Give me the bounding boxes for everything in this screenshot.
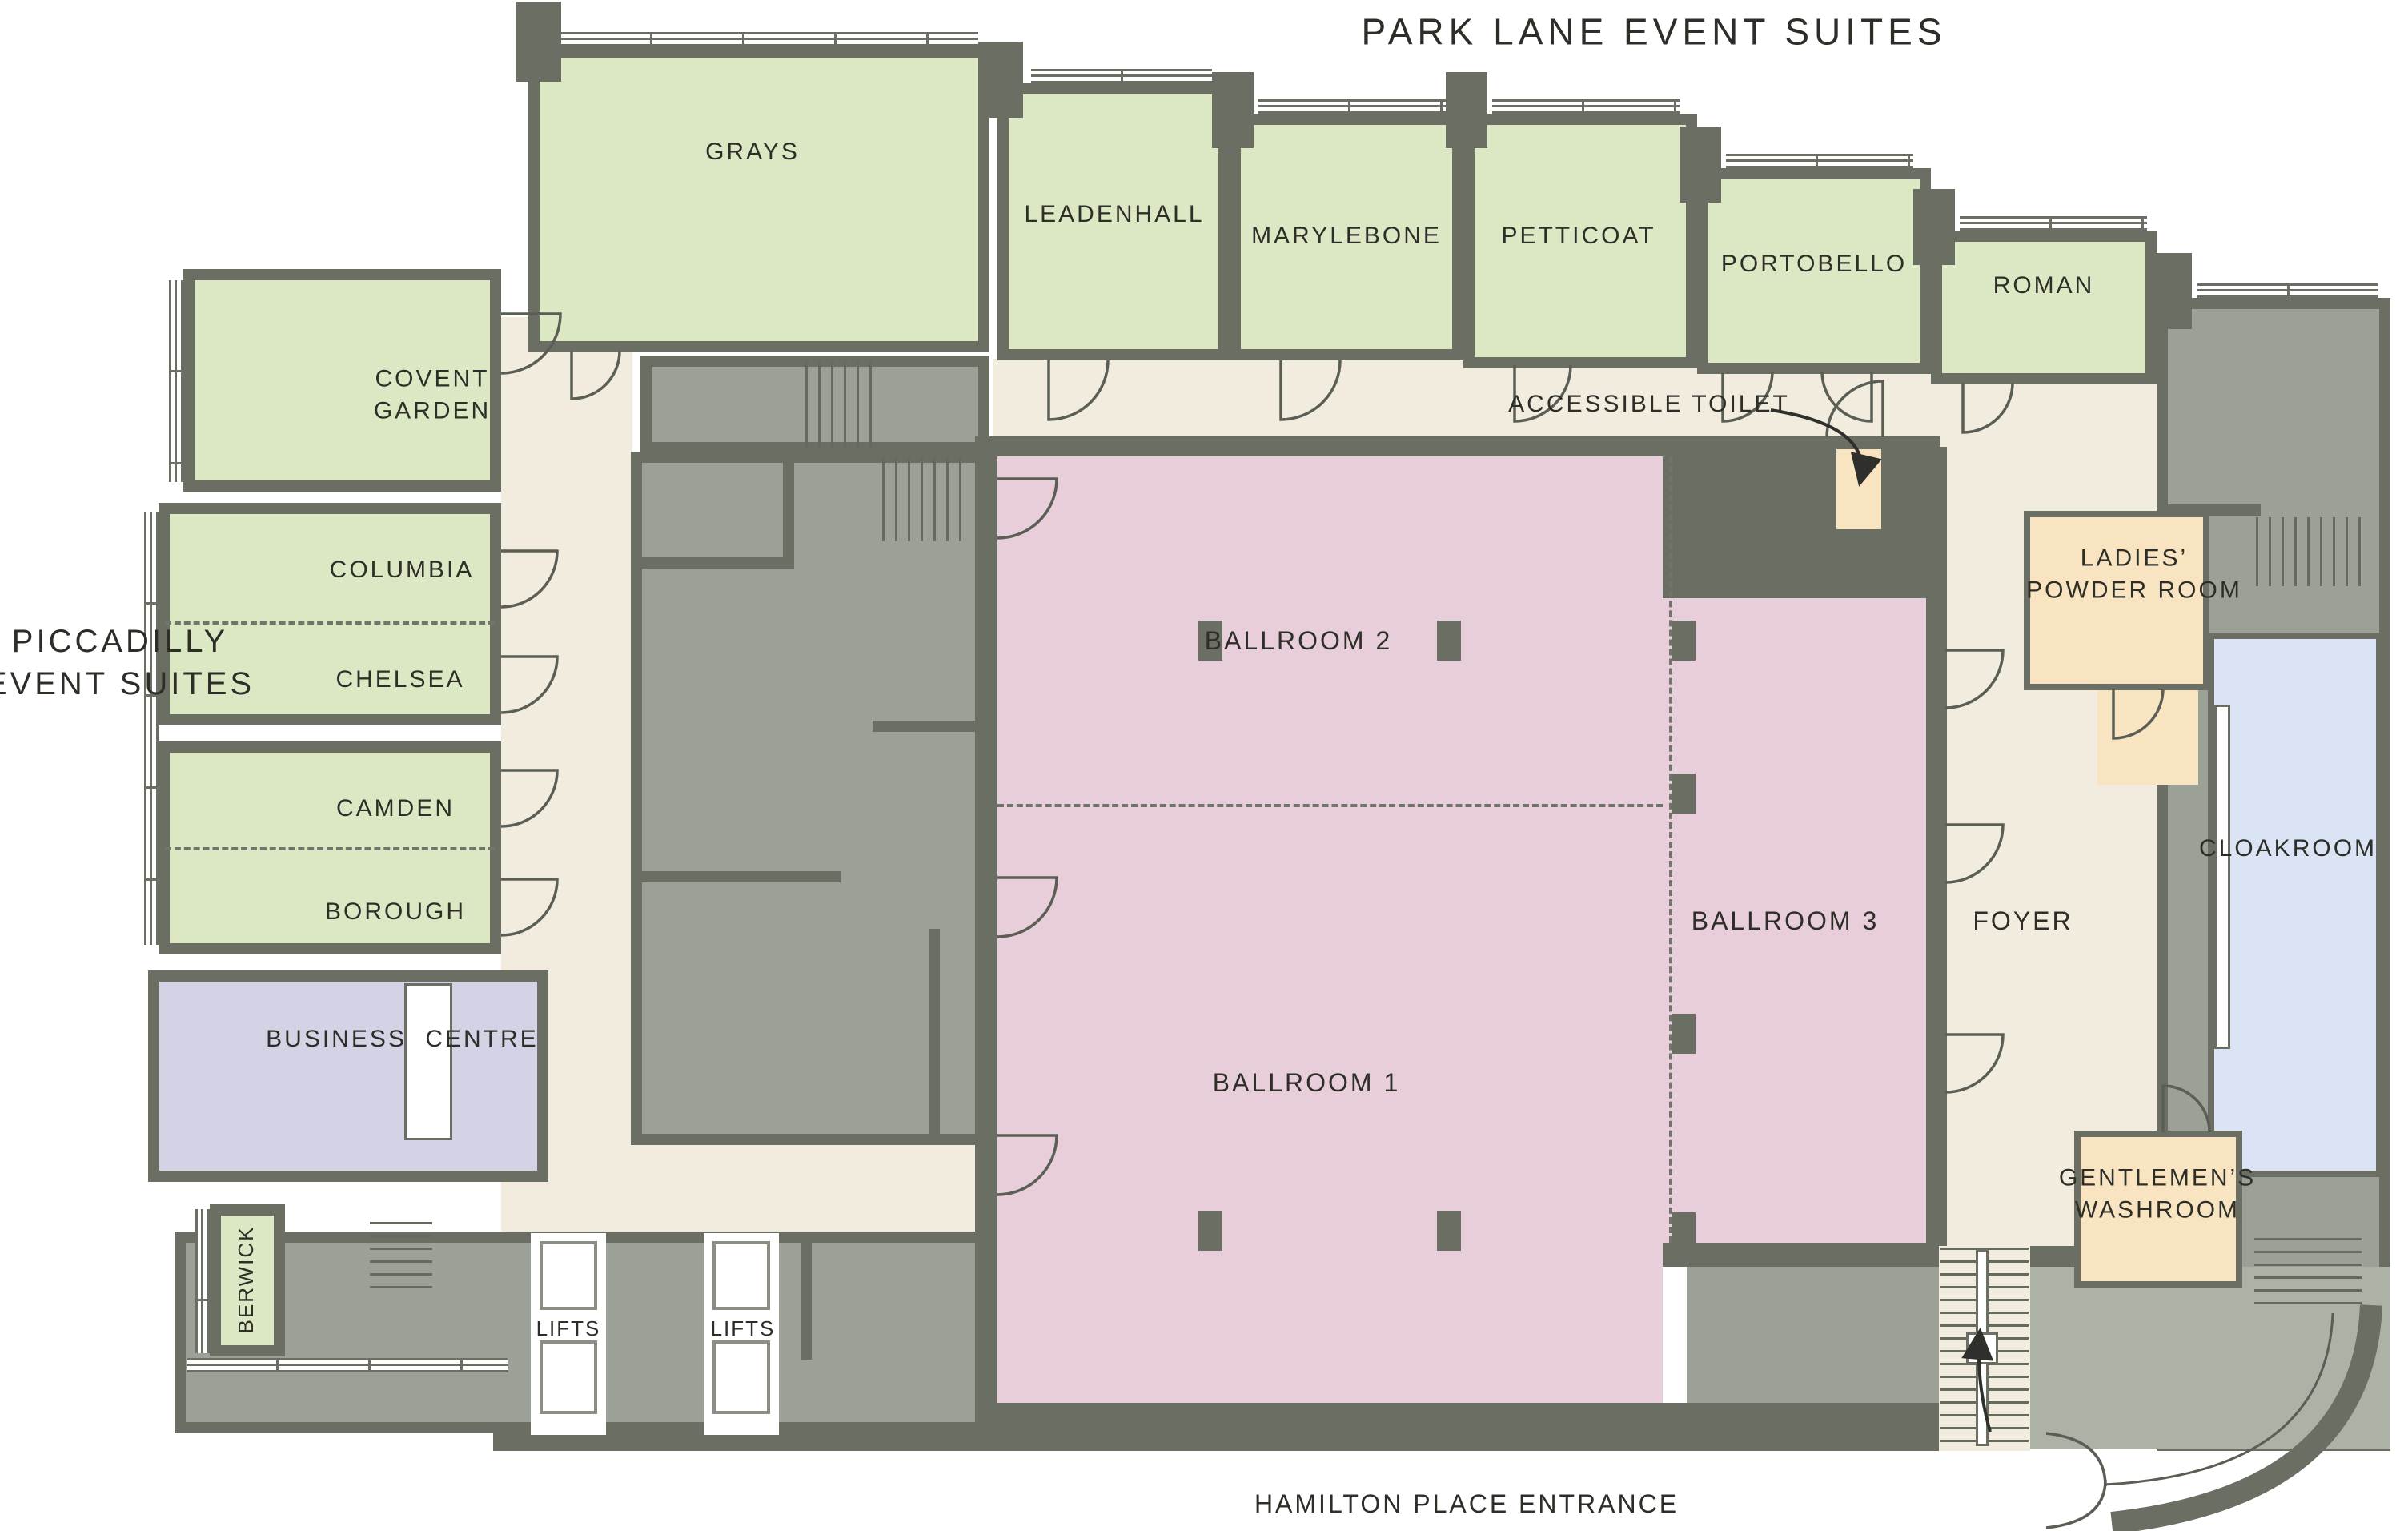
entrance-curved-wall	[2112, 1305, 2371, 1523]
floor-plan: PARK LANE EVENT SUITES PICCADILLYEVENT S…	[0, 0, 2408, 1531]
door-arcs	[501, 314, 2209, 1528]
label-camden: CAMDEN	[336, 793, 455, 825]
label-leadenhall: LEADENHALL	[1024, 199, 1204, 231]
label-entrance: HAMILTON PLACE ENTRANCE	[1254, 1487, 1679, 1521]
label-ballroom1: BALLROOM 1	[1213, 1066, 1401, 1099]
entrance-curves	[2104, 1305, 2371, 1523]
label-borough: BOROUGH	[325, 896, 466, 928]
label-gents-washroom: GENTLEMEN’SWASHROOM	[2059, 1162, 2256, 1225]
label-roman: ROMAN	[1993, 270, 2095, 302]
label-foyer: FOYER	[1973, 904, 2073, 938]
label-petticoat: PETTICOAT	[1501, 220, 1655, 252]
label-cloakroom: CLOAKROOM	[2199, 833, 2377, 865]
label-portobello: PORTOBELLO	[1721, 248, 1907, 280]
label-marylebone: MARYLEBONE	[1251, 220, 1442, 252]
accessible-toilet-arrow	[1771, 410, 1862, 480]
label-centre: CENTRE	[425, 1023, 538, 1055]
label-chelsea: CHELSEA	[335, 664, 464, 696]
label-ballroom2: BALLROOM 2	[1205, 624, 1393, 657]
page-title: PARK LANE EVENT SUITES	[1361, 8, 1946, 57]
label-business: BUSINESS	[266, 1023, 407, 1055]
left-title: PICCADILLYEVENT SUITES	[0, 621, 255, 705]
label-grays: GRAYS	[705, 136, 800, 168]
label-lifts-1: LIFTS	[536, 1315, 601, 1342]
label-covent-garden: COVENTGARDEN	[374, 363, 491, 426]
label-lifts-2: LIFTS	[711, 1315, 776, 1342]
label-ladies-powder: LADIES’POWDER ROOM	[2026, 542, 2242, 605]
label-ballroom3: BALLROOM 3	[1692, 904, 1880, 938]
label-accessible-toilet: ACCESSIBLE TOILET	[1508, 388, 1790, 420]
label-berwick: BERWICK	[232, 1226, 259, 1334]
label-columbia: COLUMBIA	[330, 554, 475, 586]
stair-up-arrow	[1979, 1334, 1990, 1432]
